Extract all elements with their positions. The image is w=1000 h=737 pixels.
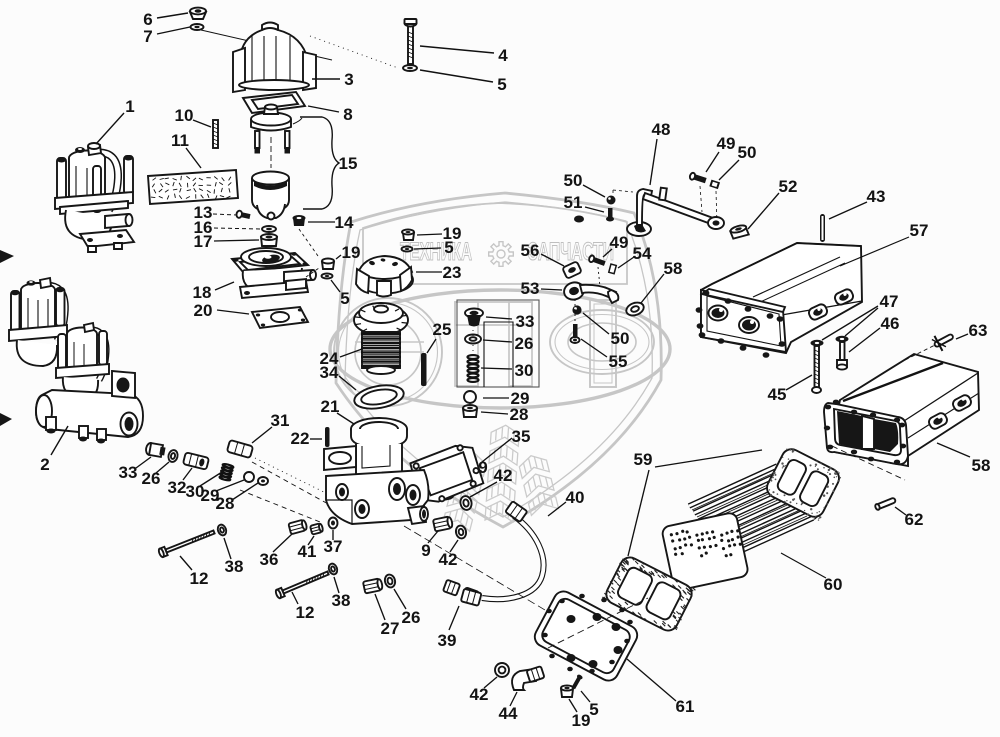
svg-text:33: 33 (119, 463, 138, 482)
svg-text:54: 54 (633, 244, 652, 263)
svg-text:47: 47 (880, 292, 899, 311)
svg-text:26: 26 (402, 608, 421, 627)
svg-text:20: 20 (194, 301, 213, 320)
svg-text:4: 4 (498, 46, 508, 65)
svg-text:31: 31 (271, 411, 290, 430)
svg-text:28: 28 (510, 405, 529, 424)
svg-text:50: 50 (611, 329, 630, 348)
svg-text:9: 9 (421, 541, 430, 560)
svg-text:5: 5 (444, 238, 453, 257)
svg-text:58: 58 (664, 259, 683, 278)
svg-text:62: 62 (905, 510, 924, 529)
svg-text:57: 57 (910, 221, 929, 240)
svg-text:14: 14 (335, 213, 354, 232)
svg-text:11: 11 (171, 131, 189, 150)
svg-text:8: 8 (343, 105, 352, 124)
svg-text:7: 7 (143, 27, 152, 46)
svg-text:53: 53 (521, 279, 540, 298)
svg-text:17: 17 (194, 232, 213, 251)
svg-text:58: 58 (972, 456, 991, 475)
svg-text:56: 56 (521, 241, 540, 260)
svg-text:33: 33 (516, 312, 535, 331)
svg-text:61: 61 (676, 697, 695, 716)
svg-text:27: 27 (381, 619, 400, 638)
svg-text:19: 19 (342, 243, 361, 262)
svg-text:21: 21 (321, 397, 340, 416)
svg-text:44: 44 (499, 704, 518, 723)
svg-text:38: 38 (225, 557, 244, 576)
svg-text:2: 2 (40, 455, 49, 474)
svg-text:3: 3 (344, 70, 353, 89)
svg-text:51: 51 (564, 193, 583, 212)
svg-text:26: 26 (142, 469, 161, 488)
svg-text:60: 60 (824, 575, 843, 594)
svg-text:12: 12 (190, 569, 209, 588)
svg-text:49: 49 (717, 134, 736, 153)
svg-text:18: 18 (193, 283, 212, 302)
svg-text:50: 50 (738, 143, 757, 162)
svg-text:22: 22 (291, 429, 310, 448)
svg-text:55: 55 (609, 352, 628, 371)
svg-text:37: 37 (324, 537, 343, 556)
svg-text:5: 5 (497, 75, 506, 94)
svg-text:49: 49 (610, 233, 629, 252)
svg-text:50: 50 (564, 171, 583, 190)
svg-text:59: 59 (634, 450, 653, 469)
svg-text:48: 48 (652, 120, 671, 139)
svg-text:42: 42 (494, 466, 513, 485)
svg-text:26: 26 (515, 334, 534, 353)
svg-text:5: 5 (589, 700, 598, 719)
svg-text:40: 40 (566, 488, 585, 507)
svg-text:32: 32 (168, 478, 187, 497)
svg-text:41: 41 (298, 542, 317, 561)
svg-text:45: 45 (768, 385, 787, 404)
svg-text:35: 35 (512, 427, 531, 446)
svg-text:52: 52 (779, 177, 798, 196)
svg-text:42: 42 (470, 685, 489, 704)
svg-text:36: 36 (260, 550, 279, 569)
svg-text:25: 25 (433, 320, 452, 339)
svg-text:39: 39 (438, 631, 457, 650)
svg-text:23: 23 (443, 263, 462, 282)
svg-text:10: 10 (175, 106, 194, 125)
svg-text:15: 15 (339, 154, 358, 173)
svg-text:1: 1 (125, 97, 134, 116)
svg-text:12: 12 (296, 603, 315, 622)
svg-text:63: 63 (969, 321, 988, 340)
svg-text:43: 43 (867, 187, 886, 206)
svg-text:19: 19 (572, 711, 591, 730)
svg-text:30: 30 (515, 361, 534, 380)
svg-text:46: 46 (881, 314, 900, 333)
svg-text:5: 5 (340, 289, 349, 308)
svg-text:28: 28 (216, 494, 235, 513)
svg-text:38: 38 (332, 591, 351, 610)
svg-text:34: 34 (320, 363, 339, 382)
svg-text:42: 42 (439, 550, 458, 569)
